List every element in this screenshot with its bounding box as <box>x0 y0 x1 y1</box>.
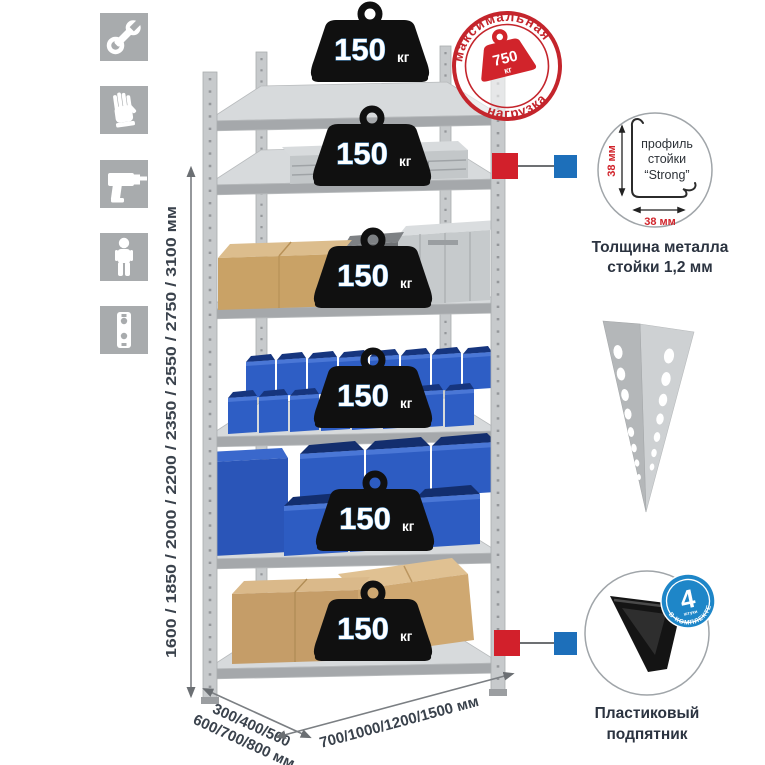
blue-marker <box>554 155 577 178</box>
profile-dim-side: 38 мм <box>606 145 618 177</box>
load-value: 150 <box>337 378 389 413</box>
foot-caption-2: подпятник <box>606 726 687 743</box>
load-unit: кг <box>400 629 413 644</box>
profile-callout <box>492 153 577 179</box>
blue-marker <box>554 632 577 655</box>
thickness-caption-1: Толщина металла <box>592 239 729 256</box>
load-unit: кг <box>402 519 415 534</box>
drill-icon <box>100 160 148 208</box>
red-marker <box>492 153 518 179</box>
thickness-caption-2: стойки 1,2 мм <box>607 259 712 276</box>
person-icon <box>100 233 148 281</box>
load-value: 150 <box>337 611 389 646</box>
gloves-icon <box>100 86 148 134</box>
plastic-foot-detail: 4 штуки В КОМПЛЕКТЕ Пластиковый подпятни… <box>585 569 720 743</box>
load-value: 150 <box>339 501 391 536</box>
width-dimension-label: 700/1000/1200/1500 мм <box>318 693 481 752</box>
infographic-canvas: 150 кг 150 кг 150 кг 150 кг 150 кг 150 к… <box>0 0 765 765</box>
load-value: 150 <box>334 32 386 67</box>
profile-label-3: “Strong” <box>644 168 689 182</box>
height-dimension: 1600 / 1850 / 2000 / 2200 / 2350 / 2550 … <box>163 168 191 696</box>
feature-icons <box>100 13 148 354</box>
profile-dim-bottom: 38 мм <box>644 216 676 228</box>
height-dimension-label: 1600 / 1850 / 2000 / 2200 / 2350 / 2550 … <box>163 206 180 658</box>
load-value: 150 <box>336 136 388 171</box>
load-unit: кг <box>400 276 413 291</box>
profile-label-2: стойки <box>648 152 686 166</box>
perforated-post-icon <box>100 306 148 354</box>
width-dimension: 700/1000/1200/1500 мм <box>277 674 519 762</box>
load-unit: кг <box>400 396 413 411</box>
profile-label-1: профиль <box>641 137 693 151</box>
red-marker <box>494 630 520 656</box>
foot-caption-1: Пластиковый <box>595 705 700 722</box>
foot-callout <box>494 630 577 656</box>
load-unit: кг <box>397 50 410 65</box>
wrench-icon <box>100 13 148 61</box>
post-profile-detail: 38 мм 38 мм профиль стойки “Strong” Толщ… <box>592 113 729 276</box>
angle-post-image <box>603 321 694 512</box>
product-infographic: 150 кг 150 кг 150 кг 150 кг 150 кг 150 к… <box>0 0 765 765</box>
load-value: 150 <box>337 258 389 293</box>
load-unit: кг <box>399 154 412 169</box>
shelf-load-badge-1: 150 кг <box>311 5 429 82</box>
